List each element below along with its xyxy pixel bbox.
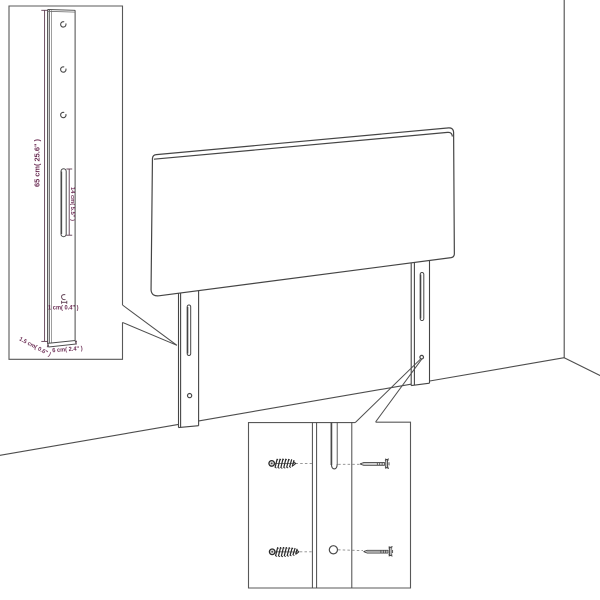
svg-text:1.5 cm( 0.6" ): 1.5 cm( 0.6" ) bbox=[18, 336, 52, 358]
svg-text:14 cm( 5.5" ): 14 cm( 5.5" ) bbox=[69, 187, 75, 221]
svg-text:6 cm( 2.4" ): 6 cm( 2.4" ) bbox=[52, 345, 83, 354]
svg-text:1 cm( 0.4" ): 1 cm( 0.4" ) bbox=[48, 304, 79, 311]
svg-text:65 cm( 25.6" ): 65 cm( 25.6" ) bbox=[32, 139, 41, 187]
